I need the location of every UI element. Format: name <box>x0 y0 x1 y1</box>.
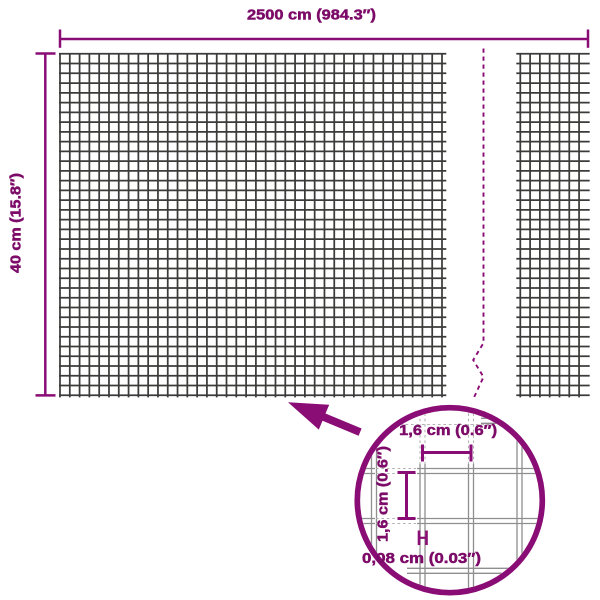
svg-text:2500 cm (984.3″): 2500 cm (984.3″) <box>247 6 376 23</box>
svg-text:0,08 cm (0.03″): 0,08 cm (0.03″) <box>362 550 481 567</box>
svg-text:40 cm (15.8″): 40 cm (15.8″) <box>8 173 25 273</box>
svg-text:1,6 cm (0.6″): 1,6 cm (0.6″) <box>399 422 497 439</box>
svg-text:1,6 cm (0.6″): 1,6 cm (0.6″) <box>375 446 392 542</box>
